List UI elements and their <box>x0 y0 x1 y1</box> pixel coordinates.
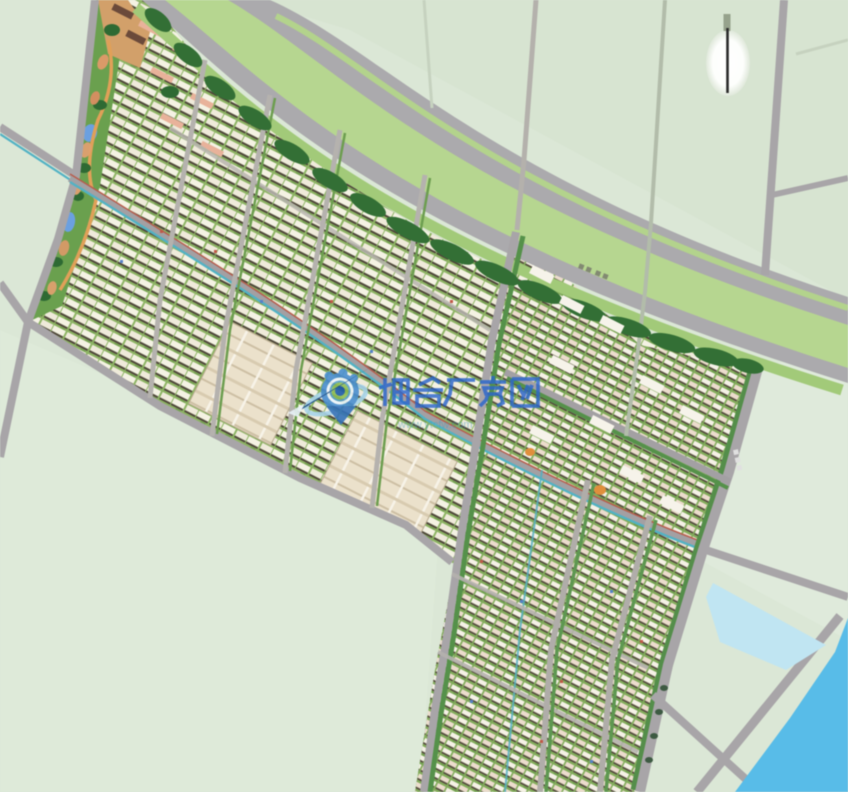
svg-text:www.ytcfw.com: www.ytcfw.com <box>397 419 473 431</box>
